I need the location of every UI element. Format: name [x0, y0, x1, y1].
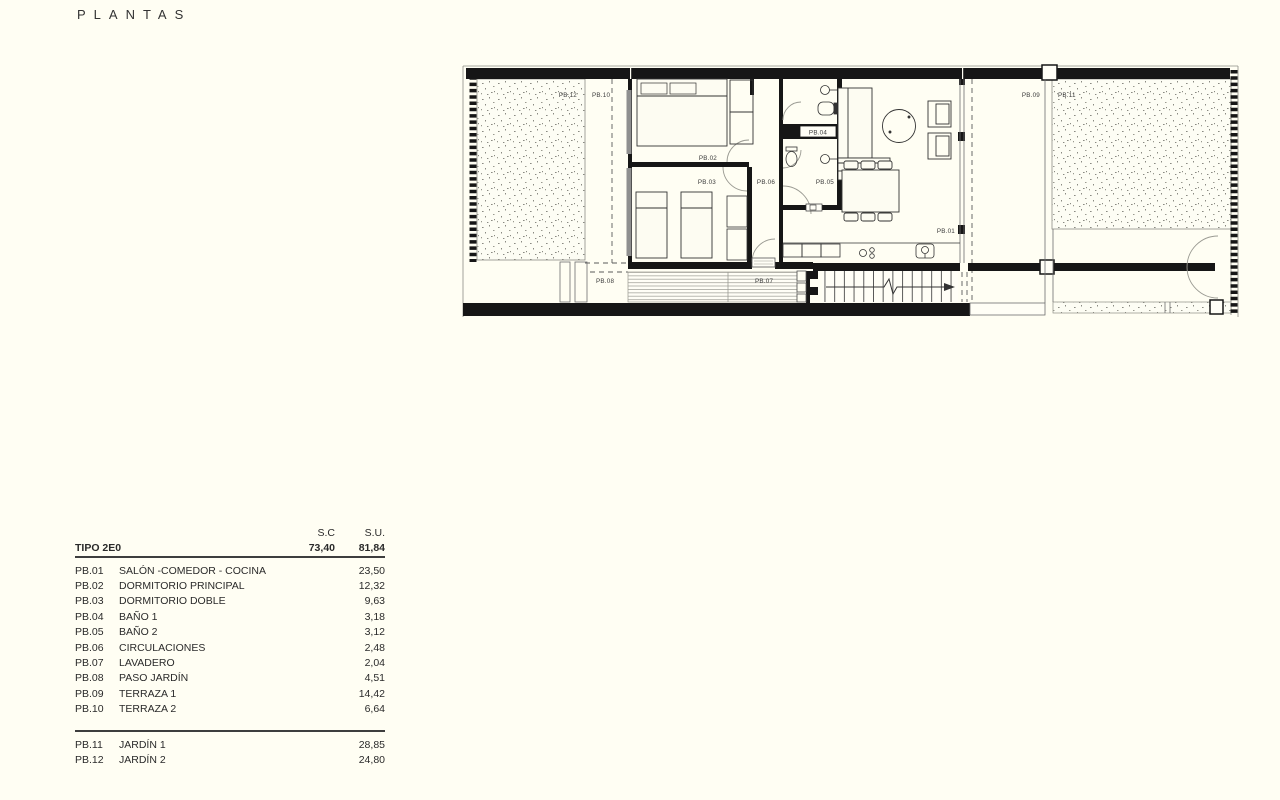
row-code: PB.11	[75, 739, 119, 751]
room-label-pb09: PB.09	[1022, 92, 1040, 99]
row-su: 3,12	[335, 626, 385, 638]
room-label-pb06: PB.06	[757, 179, 775, 186]
row-code: PB.04	[75, 611, 119, 623]
armchairs-icon	[928, 101, 951, 159]
entrance-door-leaf	[752, 258, 775, 267]
wardrobe-icon	[730, 80, 753, 144]
row-su: 3,18	[335, 611, 385, 623]
row-su: 2,04	[335, 657, 385, 669]
room-label-pb10: PB.10	[592, 92, 610, 99]
entry-steps	[797, 271, 806, 302]
row-name: SALÓN -COMEDOR - COCINA	[119, 565, 279, 577]
row-code: PB.01	[75, 565, 119, 577]
room-label-pb08: PB.08	[596, 278, 614, 285]
table-row: PB.05 BAÑO 2 3,12	[75, 625, 385, 640]
row-su: 24,80	[335, 754, 385, 766]
table-row: PB.12 JARDÍN 2 24,80	[75, 752, 385, 767]
row-code: PB.08	[75, 672, 119, 684]
floor-plan-drawing: PB.12 PB.10 PB.02 PB.03 PB.06 PB.04 PB.0…	[460, 64, 1240, 320]
row-name: BAÑO 1	[119, 611, 279, 623]
row-su: 12,32	[335, 580, 385, 592]
table-row: PB.04 BAÑO 1 3,18	[75, 609, 385, 624]
type-sc-value: 73,40	[279, 542, 335, 554]
room-label-pb12: PB.12	[559, 92, 577, 99]
row-su: 28,85	[335, 739, 385, 751]
room-label-pb01: PB.01	[937, 228, 955, 235]
type-label: TIPO 2E0	[75, 542, 279, 554]
row-name: CIRCULACIONES	[119, 642, 279, 654]
type-su-value: 81,84	[335, 542, 385, 554]
room-label-pb04: PB.04	[809, 130, 827, 137]
table-row: PB.01 SALÓN -COMEDOR - COCINA 23,50	[75, 563, 385, 578]
row-code: PB.10	[75, 703, 119, 715]
room-label-pb11: PB.11	[1058, 92, 1076, 99]
closet-icon	[727, 196, 747, 260]
round-table-icon	[883, 110, 916, 143]
row-name: DORMITORIO PRINCIPAL	[119, 580, 279, 592]
room-label-pb02: PB.02	[699, 155, 717, 162]
kitchen-counter-icon	[783, 243, 960, 258]
row-name: LAVADERO	[119, 657, 279, 669]
row-code: PB.06	[75, 642, 119, 654]
row-name: JARDÍN 2	[119, 754, 279, 766]
row-name: DORMITORIO DOBLE	[119, 595, 279, 607]
row-code: PB.09	[75, 688, 119, 700]
row-code: PB.12	[75, 754, 119, 766]
garden-2-area	[477, 79, 585, 260]
row-su: 14,42	[335, 688, 385, 700]
dining-table-icon	[842, 161, 899, 221]
west-windows	[627, 90, 632, 256]
header-su: S.U.	[335, 527, 385, 539]
bathroom-1-fixtures	[818, 86, 837, 116]
row-su: 2,48	[335, 642, 385, 654]
row-name: BAÑO 2	[119, 626, 279, 638]
double-bed-icon	[637, 79, 727, 146]
areas-table: S.C S.U. TIPO 2E0 73,40 81,84 PB.01 SALÓ…	[75, 526, 385, 768]
garden-1-area	[1052, 79, 1231, 229]
table-row: PB.03 DORMITORIO DOBLE 9,63	[75, 594, 385, 609]
room-label-pb05: PB.05	[816, 179, 834, 186]
deck-walkway	[628, 272, 797, 302]
room-label-pb07: PB.07	[755, 278, 773, 285]
table-row: PB.02 DORMITORIO PRINCIPAL 12,32	[75, 578, 385, 593]
row-su: 6,64	[335, 703, 385, 715]
table-row: PB.10 TERRAZA 2 6,64	[75, 702, 385, 717]
row-name: PASO JARDÍN	[119, 672, 279, 684]
table-row: PB.09 TERRAZA 1 14,42	[75, 686, 385, 701]
row-code: PB.02	[75, 580, 119, 592]
table-row: PB.07 LAVADERO 2,04	[75, 655, 385, 670]
row-code: PB.03	[75, 595, 119, 607]
row-code: PB.07	[75, 657, 119, 669]
table-header-row: S.C S.U.	[75, 526, 385, 539]
page-title: PLANTAS	[77, 7, 191, 22]
row-su: 23,50	[335, 565, 385, 577]
table-type-row: TIPO 2E0 73,40 81,84	[75, 539, 385, 558]
row-su: 4,51	[335, 672, 385, 684]
row-su: 9,63	[335, 595, 385, 607]
header-sc: S.C	[279, 527, 335, 539]
single-beds-icon	[636, 192, 712, 258]
room-label-pb03: PB.03	[698, 179, 716, 186]
table-row: PB.06 CIRCULACIONES 2,48	[75, 640, 385, 655]
gravel-strip	[1053, 302, 1231, 313]
table-row: PB.08 PASO JARDÍN 4,51	[75, 671, 385, 686]
row-code: PB.05	[75, 626, 119, 638]
table-row: PB.11 JARDÍN 1 28,85	[75, 737, 385, 752]
row-name: JARDÍN 1	[119, 739, 279, 751]
row-name: TERRAZA 2	[119, 703, 279, 715]
row-name: TERRAZA 1	[119, 688, 279, 700]
